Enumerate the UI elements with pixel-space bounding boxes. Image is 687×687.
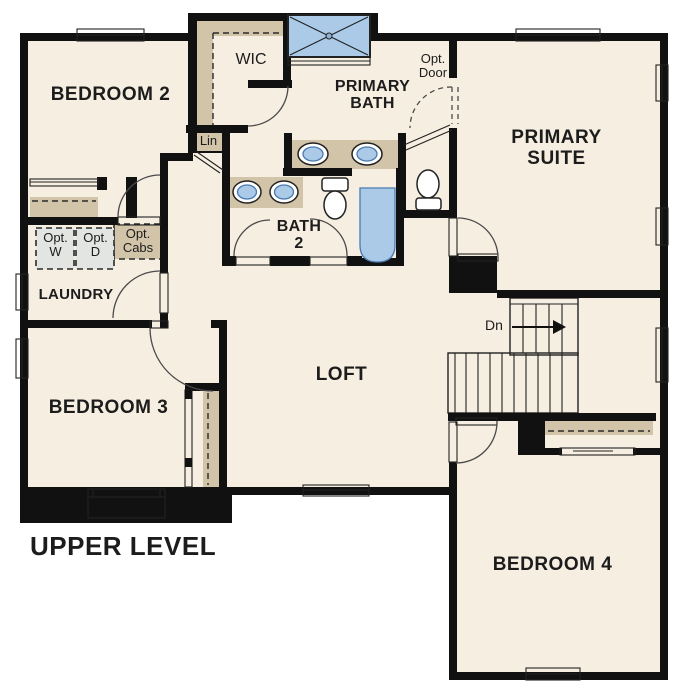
primary-bath-label: PRIMARY BATH: [320, 78, 425, 113]
floor-plan: BEDROOM 2 WIC PRIMARY BATH Opt. Door PRI…: [0, 0, 687, 687]
bedroom4-label: BEDROOM 4: [480, 555, 625, 576]
opt-cabs-label: Opt. Cabs: [114, 227, 162, 255]
bedroom2-label: BEDROOM 2: [38, 85, 183, 106]
plan-title: UPPER LEVEL: [30, 532, 260, 560]
primary-suite-label: PRIMARY SUITE: [489, 128, 624, 169]
wic-label: WIC: [219, 51, 283, 68]
shower: [288, 15, 370, 65]
bedroom2-closet-shelf: [30, 197, 98, 218]
wall-right: [660, 33, 668, 680]
opt-washer-label: Opt. W: [37, 231, 74, 259]
primary-toilet: [416, 170, 441, 210]
wall-bottom-bedroom4: [449, 672, 668, 680]
bath2-label: BATH 2: [275, 218, 323, 253]
opt-door-label: Opt. Door: [405, 52, 461, 80]
laundry-label: LAUNDRY: [26, 287, 126, 303]
wall-top-right: [370, 33, 668, 41]
linen-label: Lin: [194, 134, 223, 148]
bedroom3-closet-shelf: [203, 391, 219, 487]
opt-dryer-label: Opt. D: [77, 231, 114, 259]
bath2-toilet: [322, 178, 348, 219]
wall-bottom-loft: [224, 487, 456, 495]
wall-top-left: [20, 33, 190, 41]
loft-label: LOFT: [299, 365, 384, 386]
floor-area: [24, 17, 664, 676]
bedroom3-label: BEDROOM 3: [36, 398, 181, 419]
bathtub: [360, 188, 395, 262]
stairs-down-label: Dn: [480, 318, 508, 333]
wall-left: [20, 33, 28, 523]
